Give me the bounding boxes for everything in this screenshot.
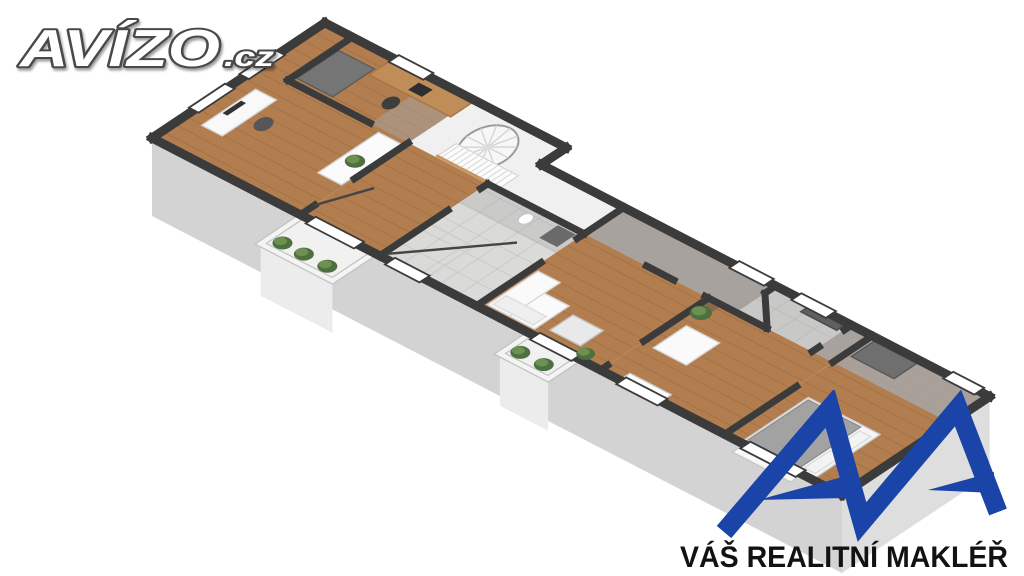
avizo-wordmark-suffix: .cz: [224, 41, 274, 72]
avizo-logo: AVÍZO.cz: [10, 4, 310, 96]
broker-mark-m-icon: [724, 408, 998, 532]
avizo-wordmark: AVÍZO.cz: [17, 20, 274, 78]
avizo-wordmark-main: AVÍZO: [17, 20, 220, 78]
real-estate-floorplan-image: AVÍZO.cz VÁŠ REALITNÍ MAKLÉŘ: [0, 0, 1024, 576]
broker-tagline: VÁŠ REALITNÍ MAKLÉŘ: [680, 540, 1008, 574]
broker-logo: VÁŠ REALITNÍ MAKLÉŘ: [660, 390, 1024, 576]
